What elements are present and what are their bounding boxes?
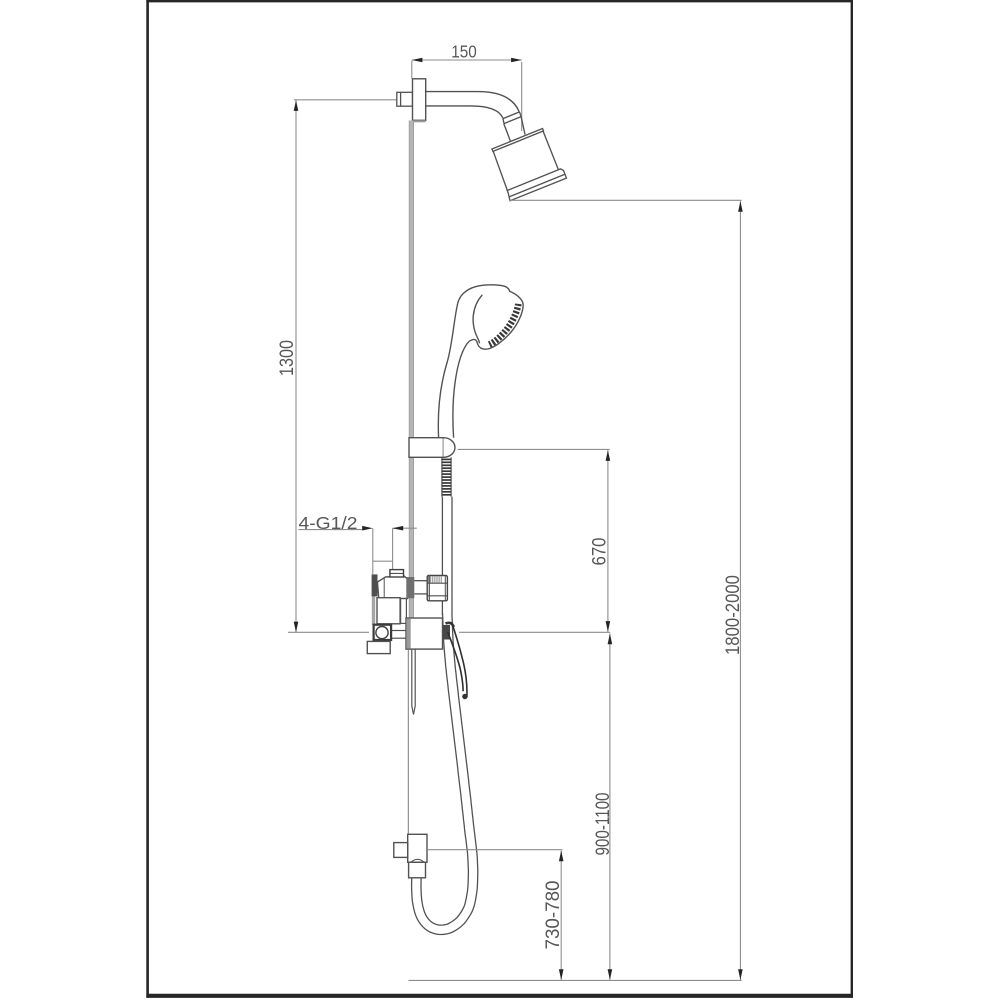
svg-text:670: 670 xyxy=(589,538,610,566)
svg-text:150: 150 xyxy=(451,42,477,62)
svg-text:1800-2000: 1800-2000 xyxy=(723,575,744,655)
svg-text:900-1100: 900-1100 xyxy=(593,793,614,856)
svg-text:1300: 1300 xyxy=(277,340,298,376)
svg-text:4-G1/2: 4-G1/2 xyxy=(299,513,358,533)
svg-text:730-780: 730-780 xyxy=(543,881,564,950)
